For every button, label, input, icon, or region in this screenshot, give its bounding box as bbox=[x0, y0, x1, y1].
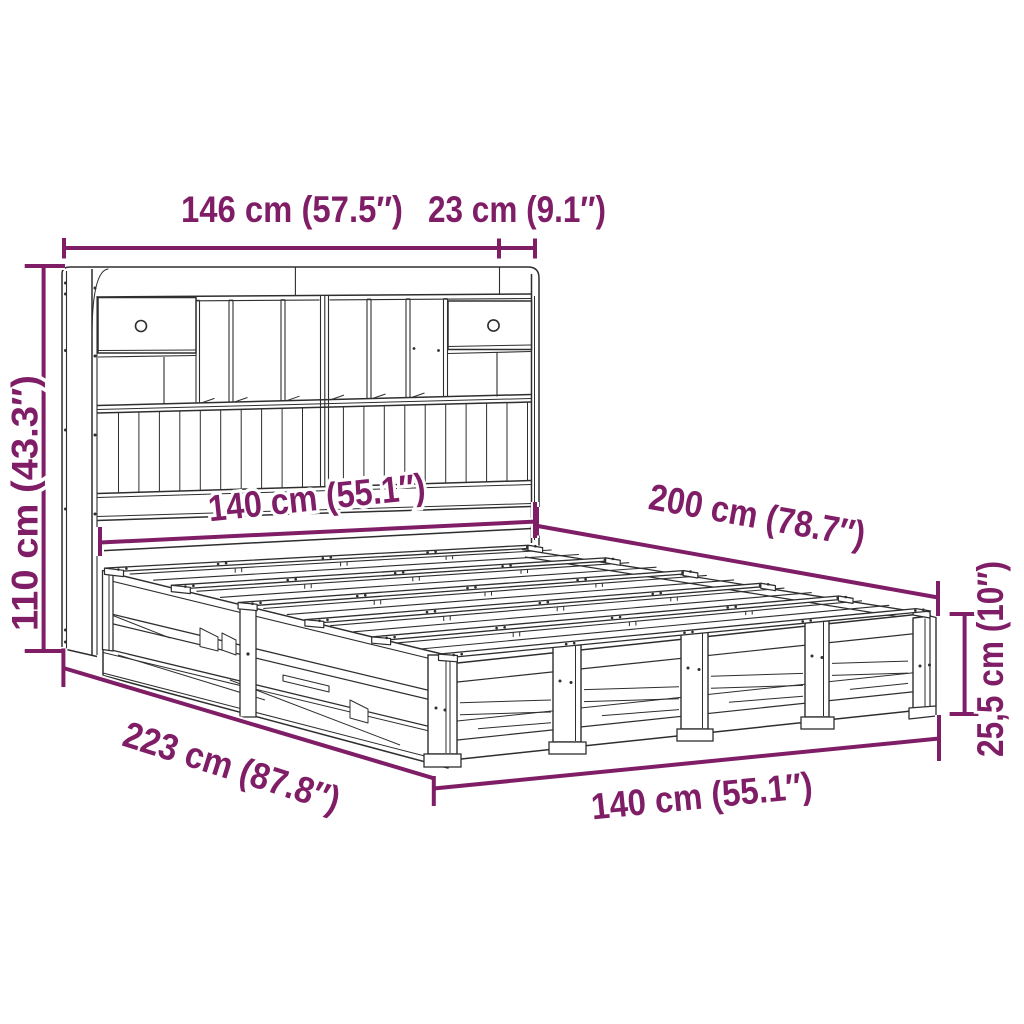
svg-text:25,5 cm (10″): 25,5 cm (10″) bbox=[970, 561, 1011, 757]
svg-text:110 cm (43.3″): 110 cm (43.3″) bbox=[5, 375, 46, 631]
svg-text:23 cm (9.1″): 23 cm (9.1″) bbox=[428, 189, 606, 230]
svg-text:146 cm (57.5″): 146 cm (57.5″) bbox=[181, 189, 403, 230]
